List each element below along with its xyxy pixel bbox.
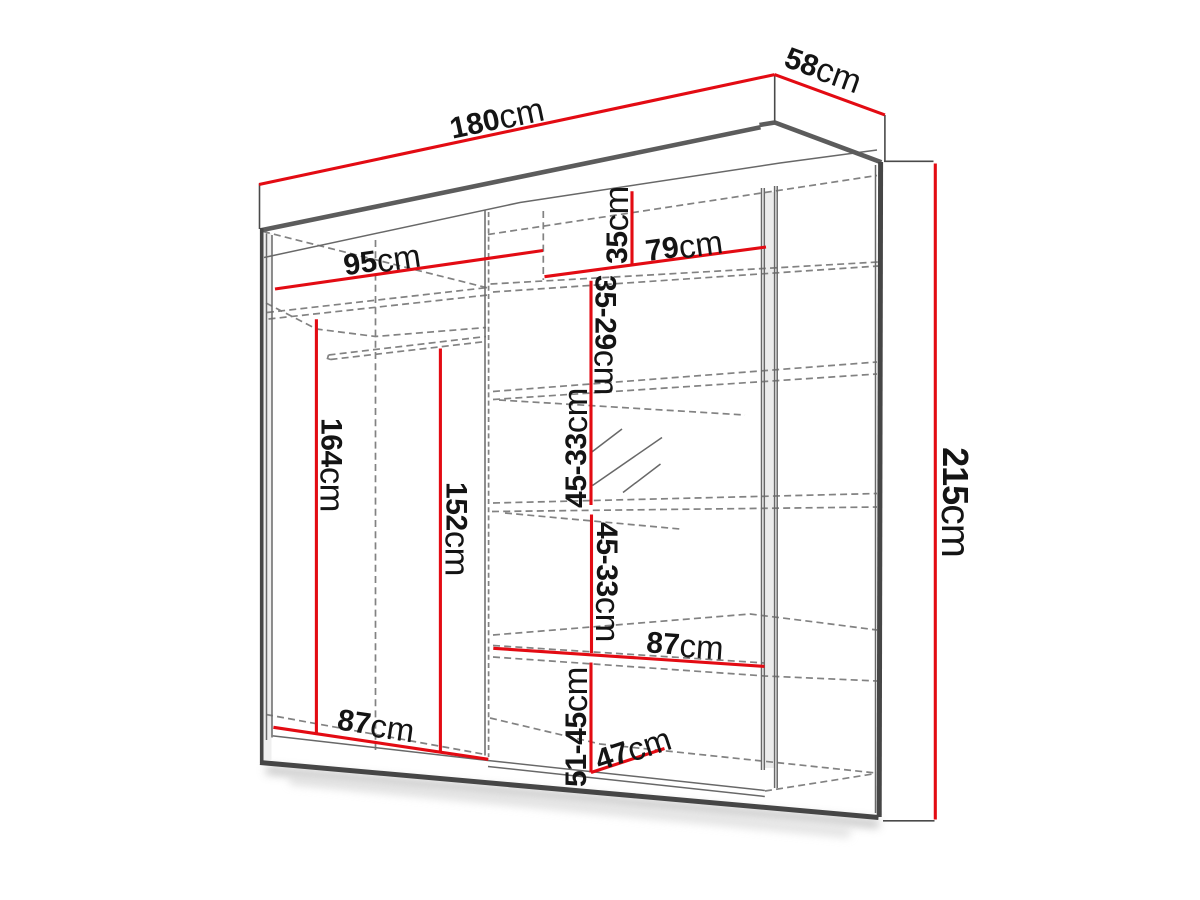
svg-text:45-33cm: 45-33cm	[557, 388, 595, 508]
svg-text:164cm: 164cm	[313, 418, 351, 512]
svg-text:51-45cm: 51-45cm	[557, 667, 595, 787]
svg-text:215cm: 215cm	[933, 447, 979, 557]
svg-text:45-33cm: 45-33cm	[588, 522, 626, 642]
svg-text:35-29cm: 35-29cm	[587, 275, 625, 395]
svg-text:152cm: 152cm	[438, 482, 476, 576]
svg-text:35cm: 35cm	[598, 186, 636, 264]
